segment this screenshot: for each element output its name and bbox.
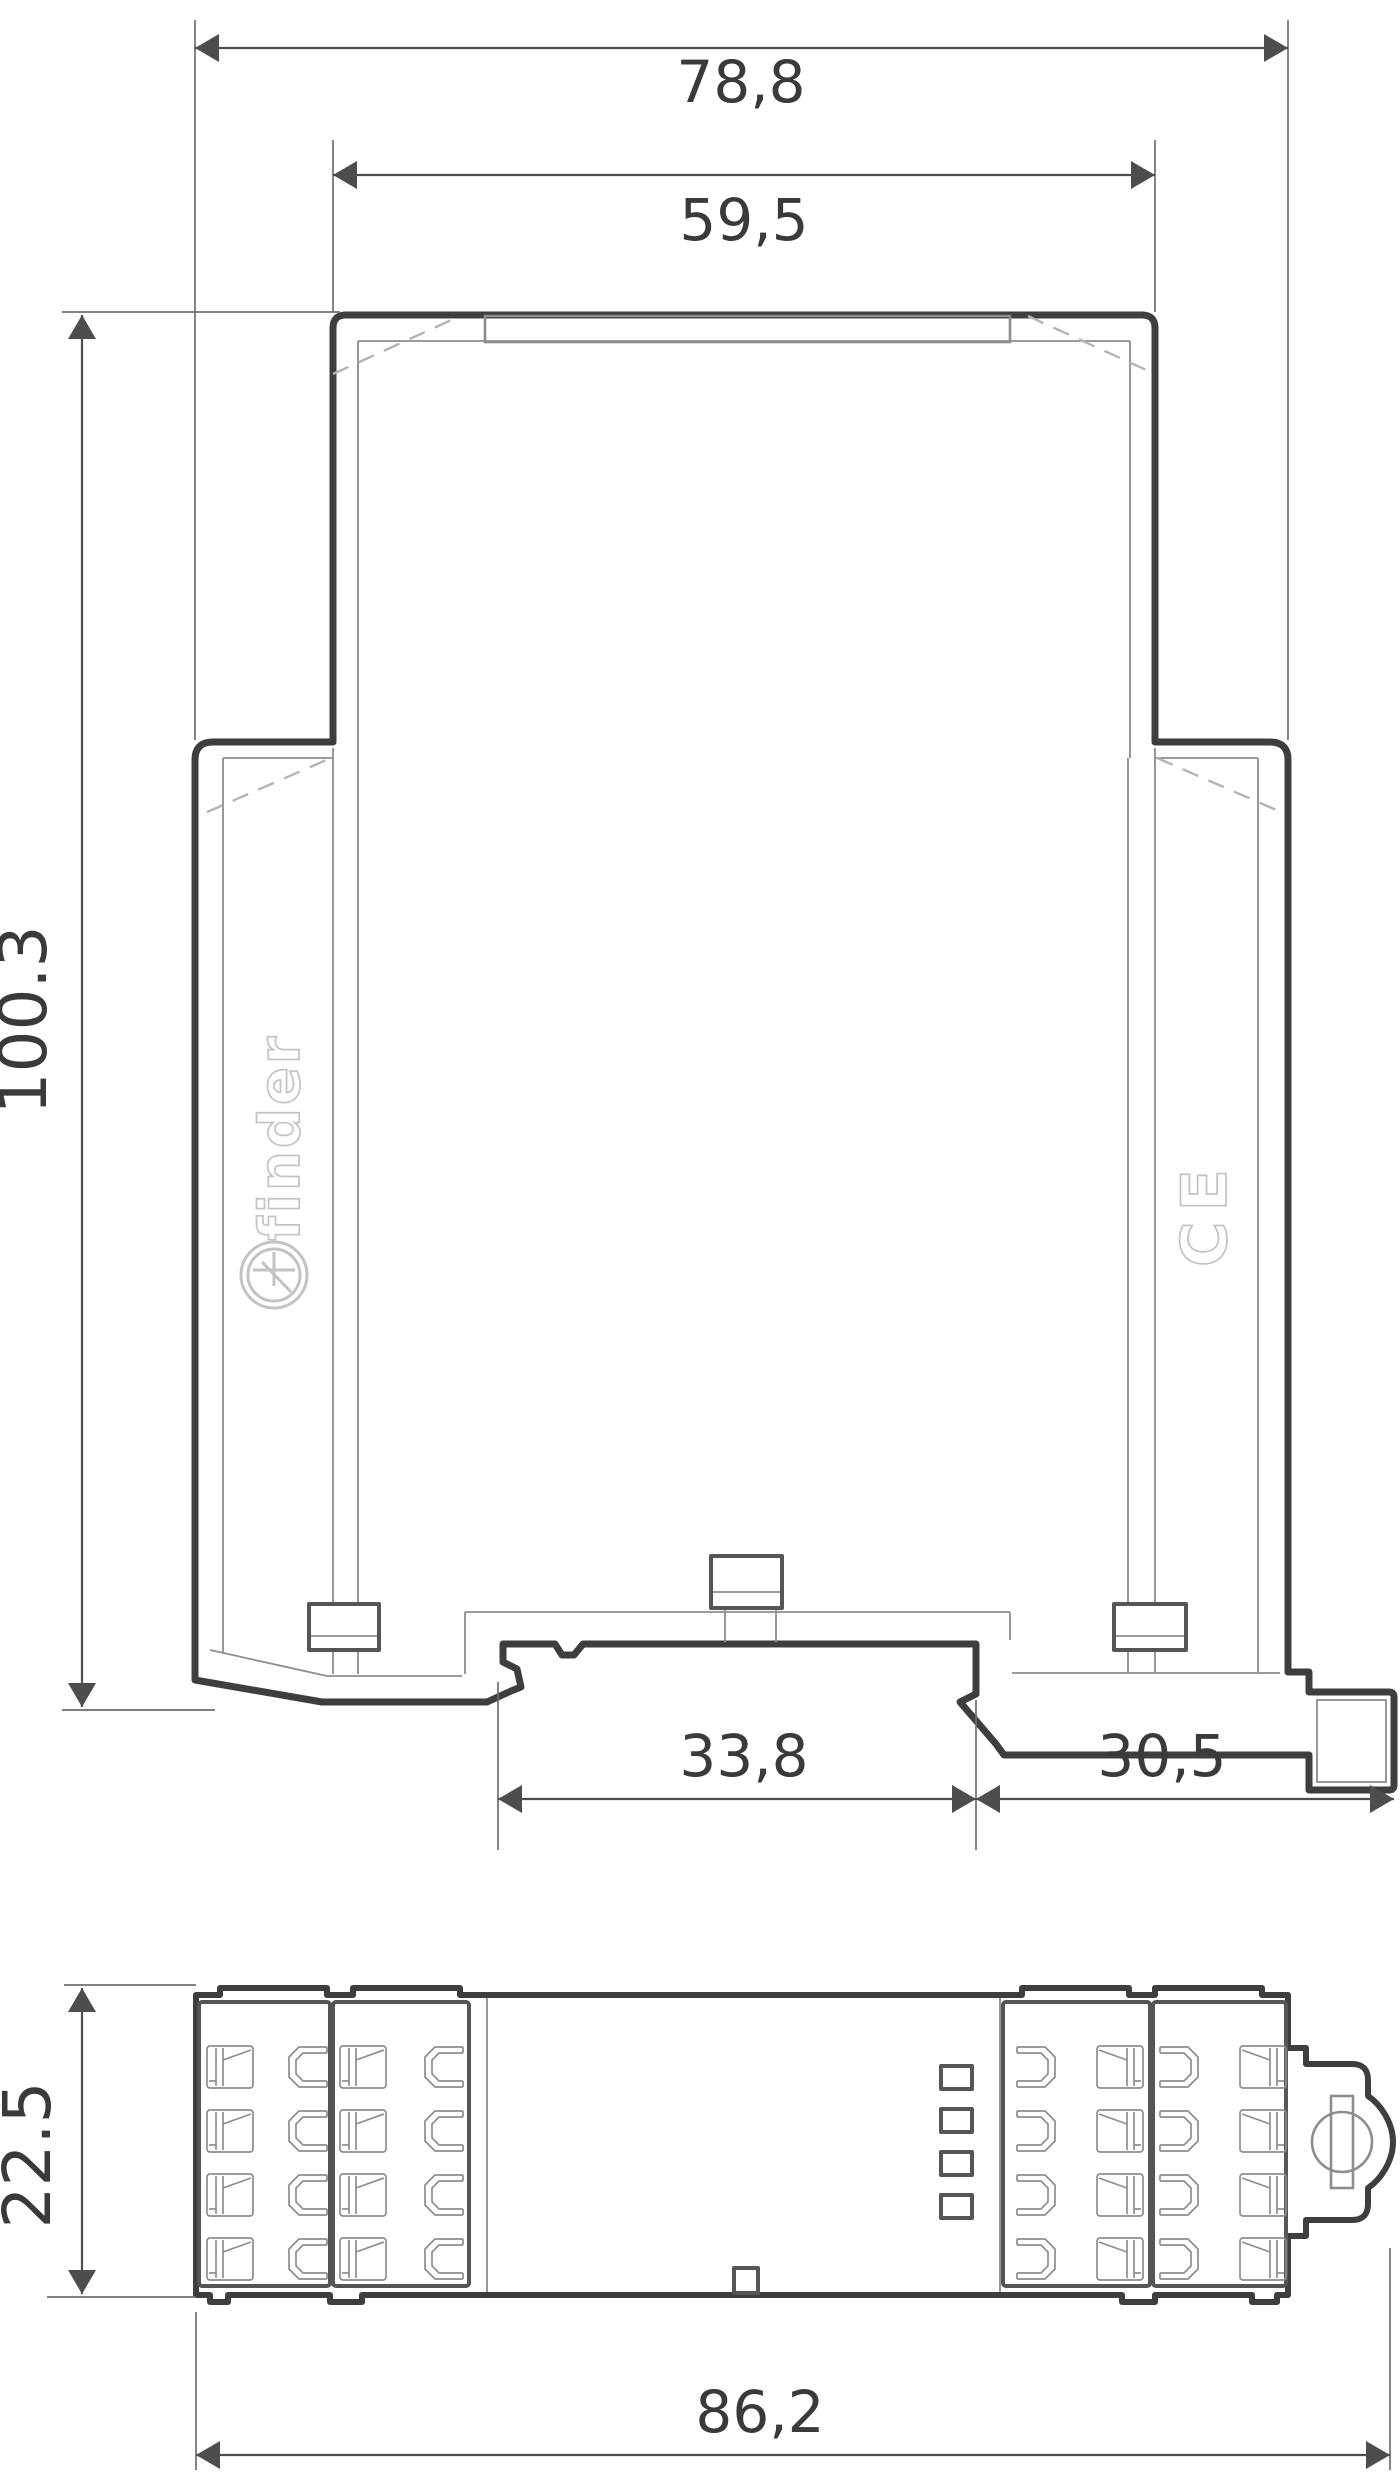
ce-mark-icon: CE	[1168, 1159, 1241, 1267]
dim-label-78-8: 78,8	[676, 48, 805, 116]
front-view: finder CE 78,8 59	[0, 20, 1394, 1850]
center-test-button	[734, 2268, 758, 2293]
dim-label-22-5: 22.5	[0, 2082, 66, 2229]
dimensional-drawing-canvas: finder CE 78,8 59	[0, 0, 1400, 2476]
dim-label-33-8: 33,8	[679, 1722, 808, 1790]
module-body-outline	[195, 315, 1394, 1790]
dim-label-30-5: 30,5	[1097, 1722, 1226, 1790]
dim-label-100-3: 100.3	[0, 926, 62, 1115]
dim-din-notch: 33,8	[498, 1682, 976, 1850]
dim-label-59-5: 59,5	[679, 186, 808, 254]
dim-upper-width: 59,5	[333, 140, 1155, 312]
dim-depth: 22.5	[0, 1985, 196, 2297]
dim-label-86-2: 86,2	[695, 2378, 824, 2446]
finder-logo-text: finder	[248, 1033, 313, 1240]
top-view: 22.5 86,2	[0, 1985, 1393, 2470]
drawing-page: finder CE 78,8 59	[0, 0, 1400, 2476]
